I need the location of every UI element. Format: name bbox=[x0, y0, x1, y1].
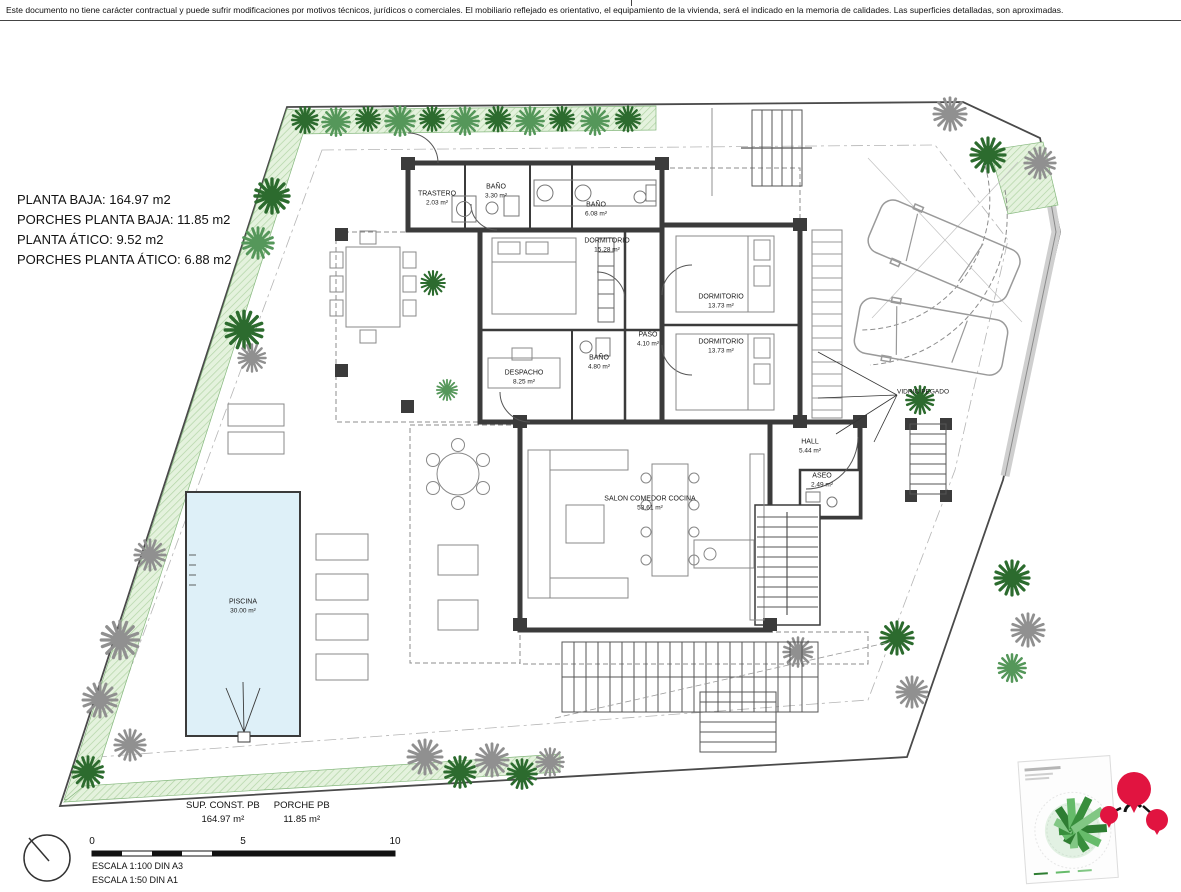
room-label-bano-608: BAÑO 6.08 m² bbox=[585, 202, 607, 219]
room-area: 5.44 m² bbox=[799, 447, 821, 455]
scale-tick-0: 0 bbox=[89, 836, 95, 847]
scale-text: ESCALA 1:100 DIN A3 ESCALA 1:50 DIN A1 bbox=[92, 860, 183, 887]
totals-block: SUP. CONST. PB 164.97 m² PORCHE PB 11.85… bbox=[186, 799, 330, 828]
room-name: SALON COMEDOR COCINA bbox=[604, 496, 695, 505]
room-name: BAÑO bbox=[485, 184, 507, 193]
sup-const-label: SUP. CONST. PB bbox=[186, 799, 260, 813]
room-label-dormitorio-3: DORMITORIO 13.73 m² bbox=[698, 339, 743, 356]
room-name: DORMITORIO bbox=[698, 339, 743, 348]
scale-tick-5: 5 bbox=[240, 836, 246, 847]
room-area: 4.80 m² bbox=[588, 363, 610, 371]
room-name: PASO bbox=[637, 332, 659, 341]
room-area: 2.49 m² bbox=[811, 481, 833, 489]
room-area: 13.73 m² bbox=[698, 347, 743, 355]
room-label-bano-480: BAÑO 4.80 m² bbox=[588, 355, 610, 372]
room-label-dormitorio-2: DORMITORIO 13.73 m² bbox=[698, 294, 743, 311]
scale-bar bbox=[92, 851, 395, 856]
floor-plan-drawing bbox=[0, 0, 1181, 892]
porche-label: PORCHE PB bbox=[274, 799, 330, 813]
room-name: PISCINA bbox=[229, 599, 257, 608]
room-area: 3.30 m² bbox=[485, 192, 507, 200]
room-name: BAÑO bbox=[585, 202, 607, 211]
room-area: 4.10 m² bbox=[637, 340, 659, 348]
room-name: DORMITORIO bbox=[698, 294, 743, 303]
room-label-aseo: ASEO 2.49 m² bbox=[811, 473, 833, 490]
room-area: 15.28 m² bbox=[584, 246, 629, 254]
room-name: TRASTERO bbox=[418, 191, 456, 200]
room-area: 13.73 m² bbox=[698, 302, 743, 310]
porche-column: PORCHE PB 11.85 m² bbox=[274, 799, 330, 828]
room-label-dormitorio-1: DORMITORIO 15.28 m² bbox=[584, 238, 629, 255]
room-label-salon: SALON COMEDOR COCINA 53.61 m² bbox=[604, 496, 695, 513]
scale-line-2: ESCALA 1:50 DIN A1 bbox=[92, 874, 183, 888]
room-label-hall: HALL 5.44 m² bbox=[799, 439, 821, 456]
room-label-bano-330: BAÑO 3.30 m² bbox=[485, 184, 507, 201]
scale-line-1: ESCALA 1:100 DIN A3 bbox=[92, 860, 183, 874]
room-label-paso: PASO 4.10 m² bbox=[637, 332, 659, 349]
annotation-vidrio-pegado: VIDRIO PEGADO bbox=[897, 389, 949, 396]
north-arrow-icon bbox=[24, 835, 70, 881]
room-label-trastero: TRASTERO 2.03 m² bbox=[418, 191, 456, 208]
swimming-pool bbox=[186, 492, 300, 742]
room-area: 6.08 m² bbox=[585, 210, 607, 218]
room-name: HALL bbox=[799, 439, 821, 448]
room-area: 8.25 m² bbox=[505, 378, 544, 386]
room-name: BAÑO bbox=[588, 355, 610, 364]
floor-plan-sheet: Este documento no tiene carácter contrac… bbox=[0, 0, 1181, 892]
room-name: DORMITORIO bbox=[584, 238, 629, 247]
house-walls bbox=[408, 163, 860, 630]
room-area: 53.61 m² bbox=[604, 504, 695, 512]
room-label-piscina: PISCINA 30.00 m² bbox=[229, 599, 257, 616]
room-area: 2.03 m² bbox=[418, 199, 456, 207]
room-area: 30.00 m² bbox=[229, 607, 257, 615]
porche-value: 11.85 m² bbox=[274, 813, 330, 827]
room-name: DESPACHO bbox=[505, 370, 544, 379]
scale-tick-10: 10 bbox=[389, 836, 400, 847]
sup-const-column: SUP. CONST. PB 164.97 m² bbox=[186, 799, 260, 828]
sup-const-value: 164.97 m² bbox=[186, 813, 260, 827]
room-label-despacho: DESPACHO 8.25 m² bbox=[505, 370, 544, 387]
parked-cars bbox=[852, 158, 1026, 381]
room-name: ASEO bbox=[811, 473, 833, 482]
